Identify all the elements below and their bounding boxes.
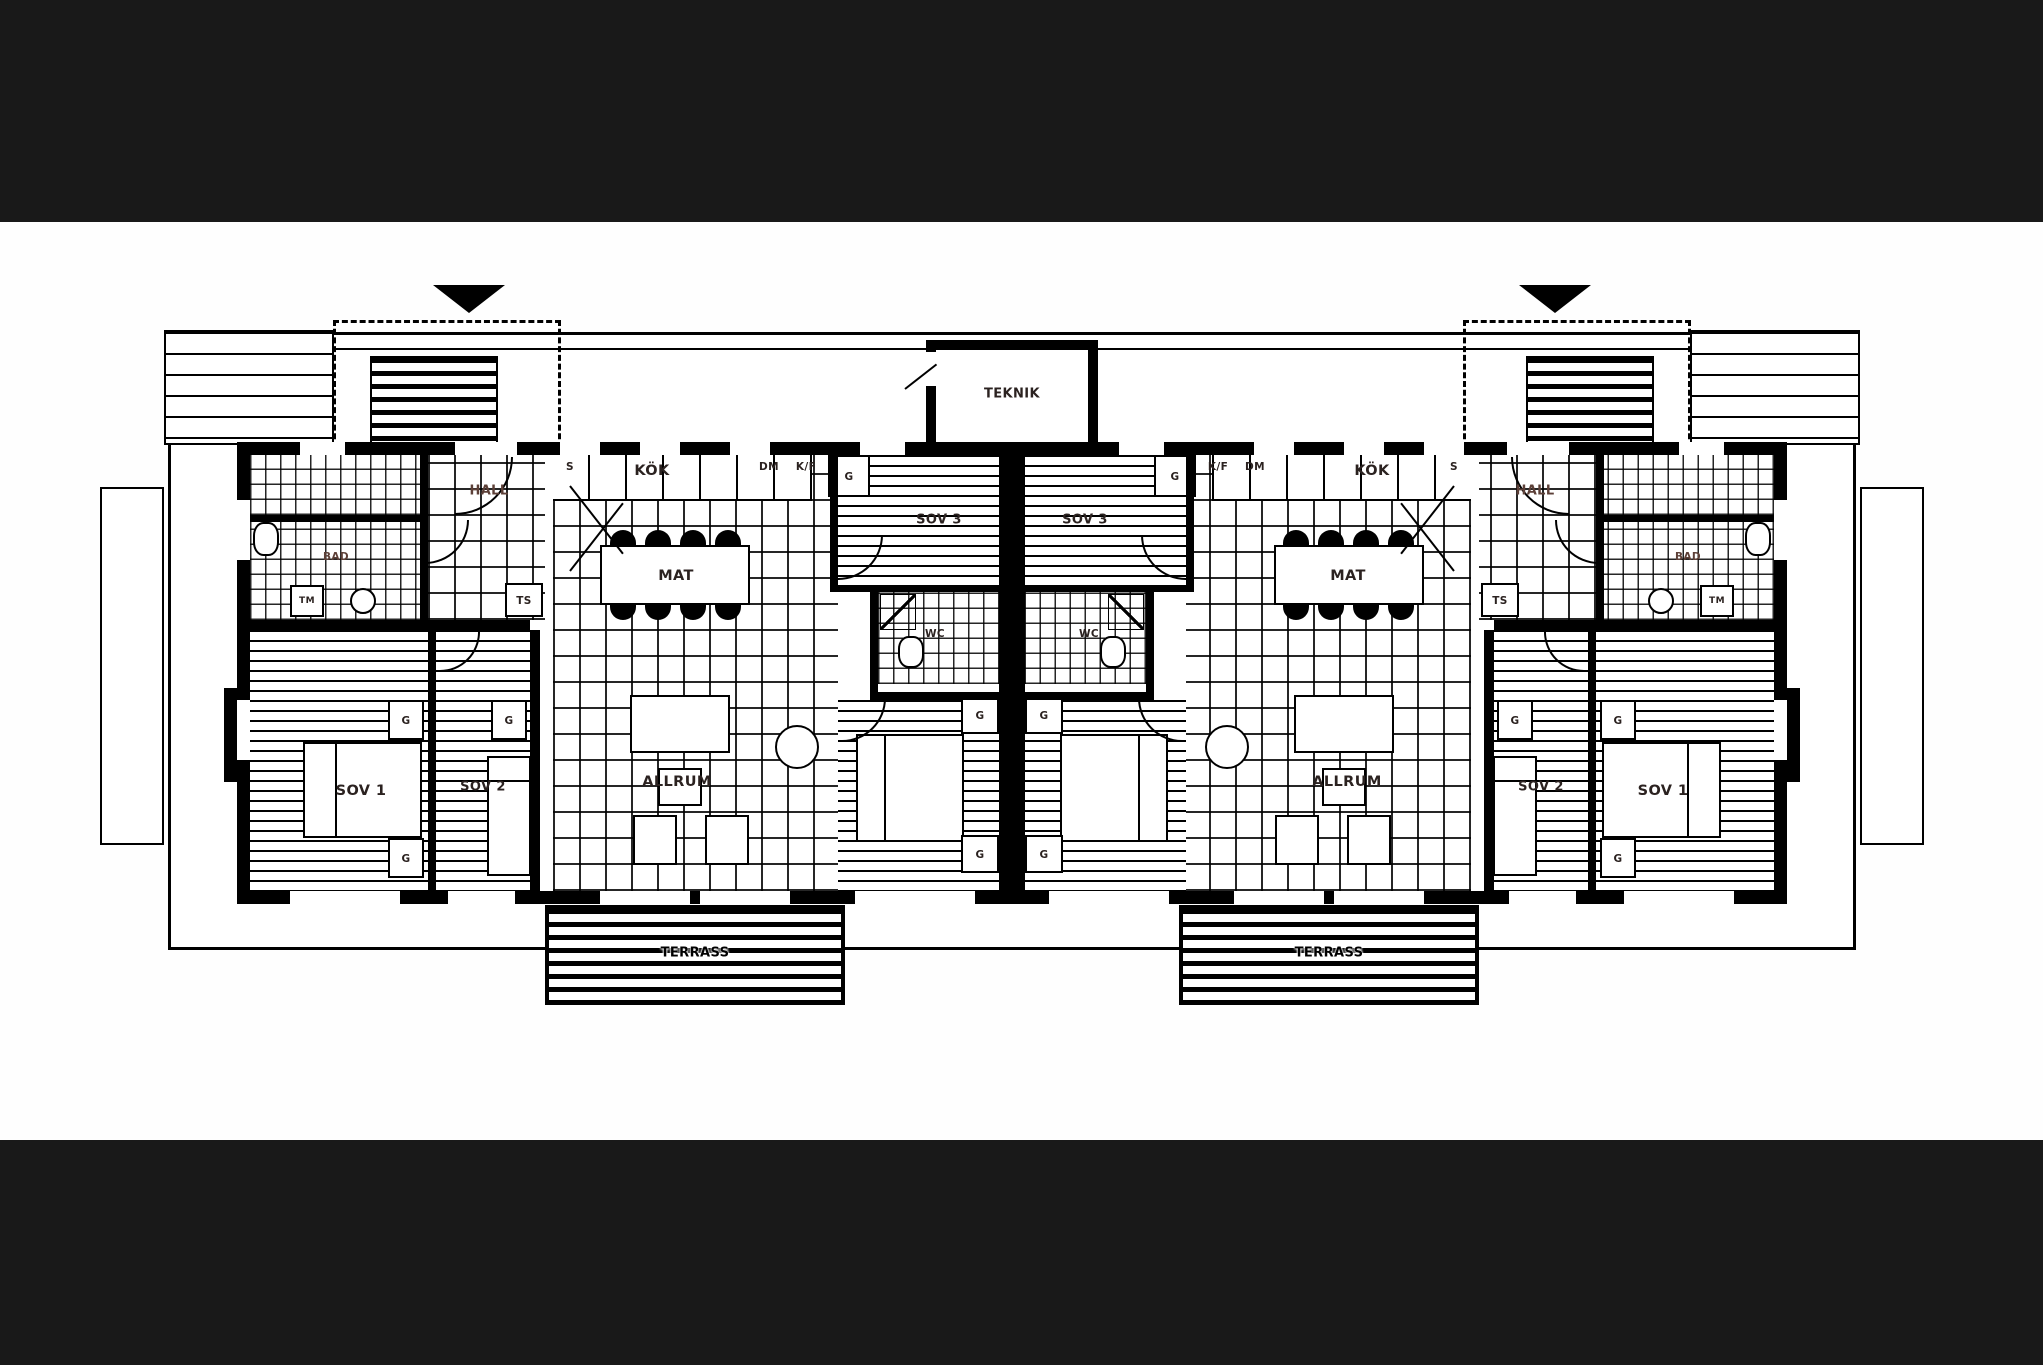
window-gap [237,700,250,760]
toilet [253,522,279,556]
bed-sov2 [487,756,531,876]
side-eave-strip [1860,487,1924,845]
label-wardrobe-right: G [1613,853,1622,865]
sofa [630,695,730,753]
room-label-sov3-left: SOV 3 [916,513,962,528]
unit-left-geometry [100,280,1012,1010]
interior-wall [830,585,999,592]
window-gap [1624,891,1734,904]
label-wardrobe-right: G [1613,715,1622,727]
label-fridge-freezer-right: K/F [1208,461,1228,473]
window-gap [855,891,975,904]
entry-porch-deck [370,356,498,448]
interior-wall [1146,592,1154,692]
window-gap [640,442,680,455]
terrace-door-gap [700,891,790,904]
bed-sov2 [1493,756,1537,876]
interior-wall [1186,455,1194,592]
label-wardrobe-right: G [1510,715,1519,727]
party-wall [999,442,1025,904]
armchair [1347,815,1391,865]
room-label-wc-left: WC [925,628,945,640]
shower-corner [880,594,916,630]
interior-wall [428,630,436,891]
interior-wall [1484,630,1494,891]
label-pantry-right: S [1450,461,1458,473]
entry-arrow-marker [1519,285,1591,313]
entry-door-gap [455,442,517,455]
window-gap [1679,442,1724,455]
window-gap [1774,700,1787,760]
label-dishwasher-right: DM [1245,461,1265,473]
label-wardrobe-left: G [504,715,513,727]
window-gap [1254,442,1294,455]
armchair [633,815,677,865]
armchair [1275,815,1319,865]
label-dishwasher-left: DM [759,461,779,473]
interior-wall [1025,692,1154,700]
label-wardrobe-left: G [401,853,410,865]
window-gap [300,442,345,455]
window-gap [1344,442,1384,455]
window-gap [237,500,250,560]
bottom-letterbox-bar [0,1140,2043,1365]
room-label-sov1-right: SOV 1 [1638,783,1689,799]
bed-sov4 [856,734,964,842]
interior-wall [1588,630,1596,891]
side-eave-strip [100,487,164,845]
armchair [705,815,749,865]
room-label-teknik: TEKNIK [984,387,1040,402]
bed-pillow-line [1138,736,1140,840]
label-washer-right: TM [1709,596,1725,606]
toilet-wc [898,636,924,668]
toilet [1745,522,1771,556]
washbasin [1648,588,1674,614]
label-terrace-right: TERRASS [1295,946,1364,961]
label-fridge-freezer-left: K/F [796,461,816,473]
swivel-chair [1205,725,1249,769]
room-label-hall-right: HALL [1515,484,1554,499]
bed-pillow-line [884,736,886,840]
room-label-living-right: ALLRUM [1312,774,1381,790]
label-wardrobe-left: G [975,849,984,861]
room-label-kitchen-left: KÖK [634,463,669,479]
interior-wall [250,515,420,522]
entry-door-gap [1507,442,1569,455]
room-label-bath-left: BAD [323,551,349,563]
label-wardrobe-left: G [844,471,853,483]
terrace-door-gap [1234,891,1324,904]
label-wardrobe-right: G [1039,710,1048,722]
window-gap [730,442,770,455]
terrace-door-gap [1334,891,1424,904]
interior-wall [1494,620,1774,630]
interior-wall [870,692,999,700]
room-label-hall-left: HALL [469,484,508,499]
unit-right-geometry [1012,280,1924,1010]
floorplan-viewer: TEKNIK S KÖK DM K/F G MAT HALL TS BAD TM… [0,0,2043,1365]
interior-wall [870,592,878,692]
toilet-wc [1100,636,1126,668]
label-washer-left: TM [299,596,315,606]
interior-wall [250,620,530,630]
interior-wall [1604,515,1774,522]
shower-corner [1108,594,1144,630]
room-label-living-left: ALLRUM [642,774,711,790]
exterior-stair [1690,330,1860,445]
label-drying-cabinet-left: TS [516,595,532,607]
room-label-wc-right: WC [1079,628,1099,640]
room-label-bath-right: BAD [1675,551,1701,563]
window-gap [1509,891,1576,904]
window-gap [448,891,515,904]
window-gap [290,891,400,904]
label-terrace-left: TERRASS [661,946,730,961]
room-label-sov3-right: SOV 3 [1062,513,1108,528]
room-label-sov2-left: SOV 2 [460,780,506,795]
room-label-kitchen-right: KÖK [1354,463,1389,479]
bed-sov4 [1060,734,1168,842]
entry-porch-deck [1526,356,1654,448]
washbasin [350,588,376,614]
label-wardrobe-left: G [401,715,410,727]
label-drying-cabinet-right: TS [1492,595,1508,607]
room-label-dining-right: MAT [1330,568,1366,584]
interior-wall [1025,585,1194,592]
label-pantry-left: S [566,461,574,473]
sofa [1294,695,1394,753]
room-label-dining-left: MAT [658,568,694,584]
terrace-door-gap [600,891,690,904]
room-label-sov1-left: SOV 1 [336,783,387,799]
label-wardrobe-right: G [1039,849,1048,861]
window-gap [1119,442,1164,455]
window-gap [1424,442,1464,455]
interior-wall [530,630,540,891]
top-letterbox-bar [0,0,2043,222]
label-wardrobe-left: G [975,710,984,722]
window-gap [1774,500,1787,560]
window-gap [860,442,905,455]
entry-arrow-marker [433,285,505,313]
exterior-stair [164,330,334,445]
label-wardrobe-right: G [1170,471,1179,483]
window-gap [560,442,600,455]
window-gap [1049,891,1169,904]
interior-wall [830,455,838,592]
swivel-chair [775,725,819,769]
room-label-sov2-right: SOV 2 [1518,780,1564,795]
